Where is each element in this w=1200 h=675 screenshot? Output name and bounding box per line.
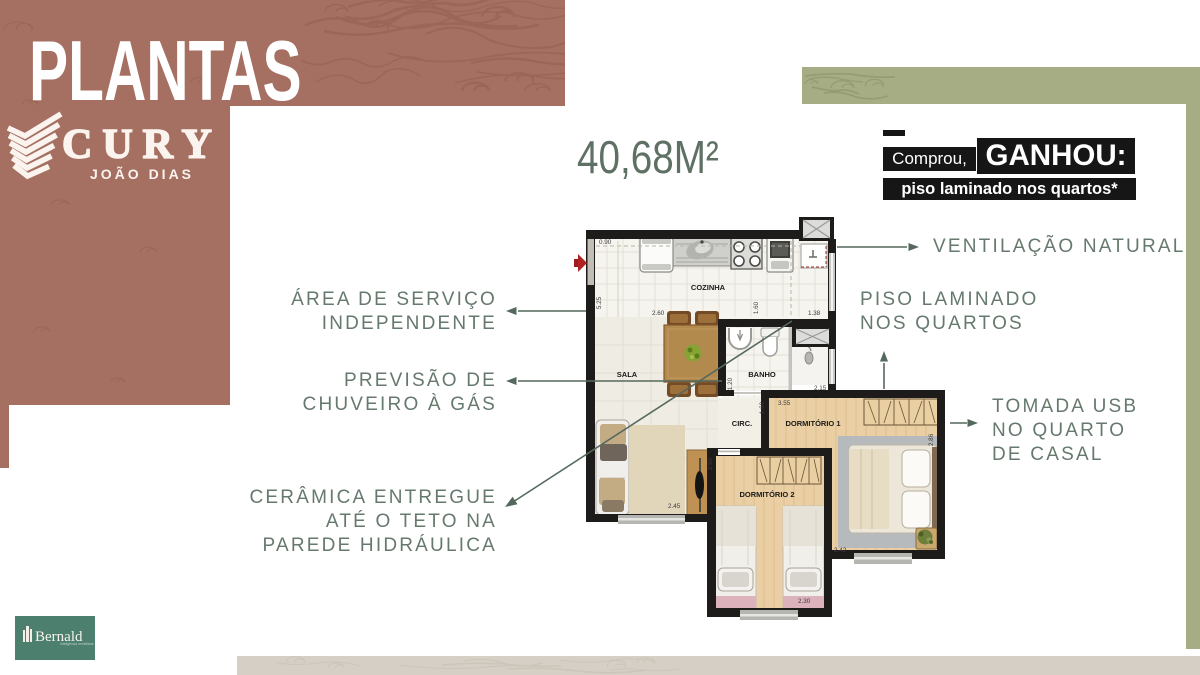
svg-text:2.42: 2.42: [834, 547, 847, 554]
svg-text:1.38: 1.38: [808, 310, 821, 317]
svg-text:SALA: SALA: [617, 370, 638, 379]
svg-text:COZINHA: COZINHA: [691, 283, 726, 292]
svg-text:DORMITÓRIO 1: DORMITÓRIO 1: [785, 419, 840, 428]
svg-text:BANHO: BANHO: [748, 370, 776, 379]
svg-text:1.60: 1.60: [759, 401, 766, 414]
svg-text:3.55: 3.55: [778, 400, 791, 407]
svg-text:2.90: 2.90: [707, 457, 714, 470]
svg-text:DORMITÓRIO 2: DORMITÓRIO 2: [739, 490, 794, 499]
svg-text:1.60: 1.60: [753, 301, 760, 314]
svg-text:2.45: 2.45: [668, 503, 681, 510]
svg-text:2.15: 2.15: [814, 385, 827, 392]
svg-text:2.86: 2.86: [928, 433, 935, 446]
svg-text:2.60: 2.60: [652, 310, 665, 317]
svg-text:5.25: 5.25: [596, 296, 603, 309]
svg-text:1.20: 1.20: [727, 377, 734, 390]
svg-text:Inteligência Imobiliária: Inteligência Imobiliária: [60, 642, 94, 646]
svg-text:0.90: 0.90: [599, 239, 612, 246]
svg-text:2.30: 2.30: [798, 598, 811, 605]
svg-text:CIRC.: CIRC.: [732, 419, 752, 428]
